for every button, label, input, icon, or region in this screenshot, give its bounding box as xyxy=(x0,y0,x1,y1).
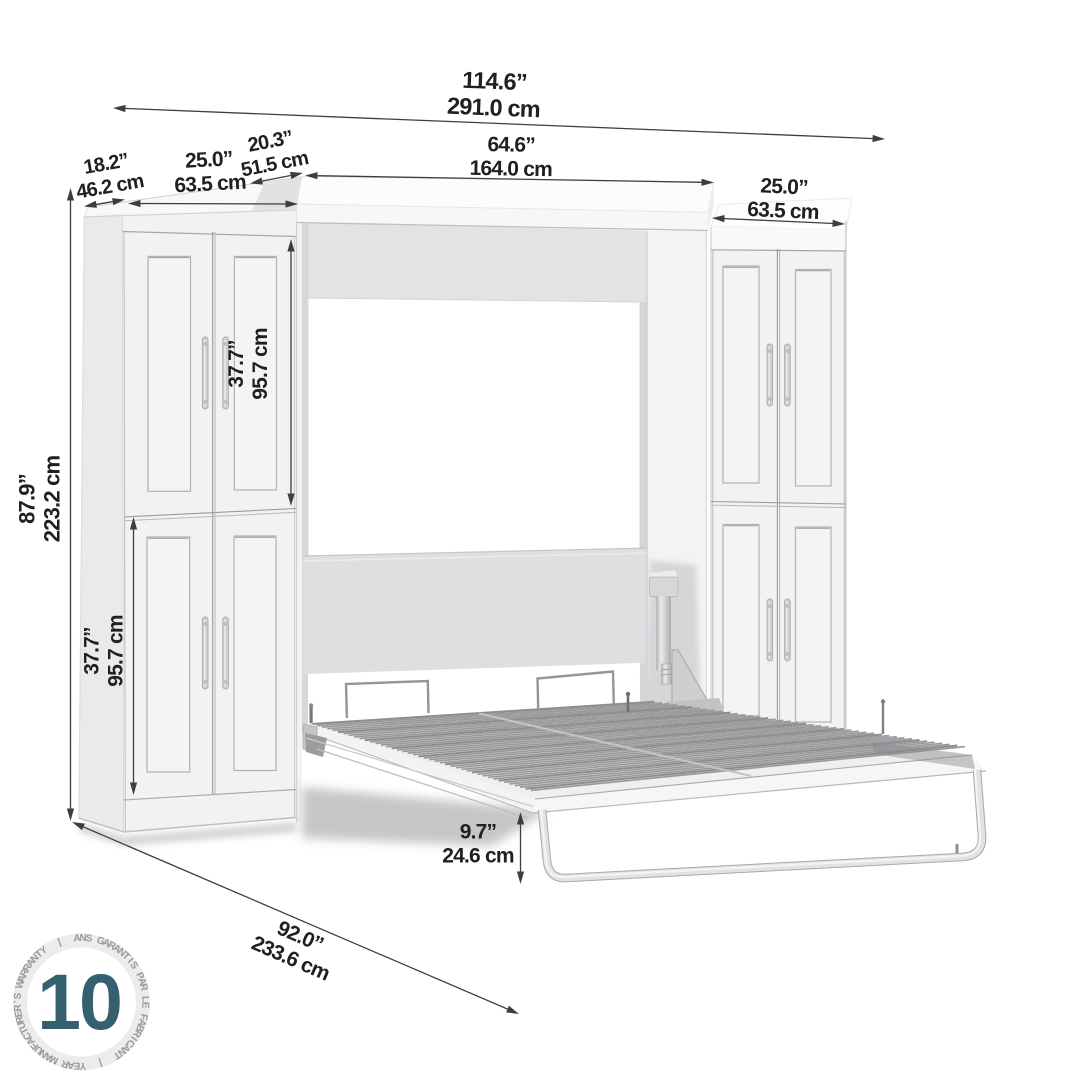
svg-text:25.0”: 25.0” xyxy=(185,147,234,172)
svg-text:63.5 cm: 63.5 cm xyxy=(747,198,820,224)
svg-text:37.7”: 37.7” xyxy=(225,340,248,387)
svg-text:223.2 cm: 223.2 cm xyxy=(40,455,65,542)
svg-text:95.7 cm: 95.7 cm xyxy=(105,615,128,687)
svg-text:10: 10 xyxy=(37,957,121,1046)
svg-text:25.0”: 25.0” xyxy=(760,174,808,199)
svg-text:291.0 cm: 291.0 cm xyxy=(447,93,541,123)
svg-text:37.7”: 37.7” xyxy=(81,627,104,674)
svg-text:87.9”: 87.9” xyxy=(15,474,40,524)
svg-text:63.5 cm: 63.5 cm xyxy=(174,171,247,198)
svg-text:S: S xyxy=(13,992,25,1000)
svg-text:64.6”: 64.6” xyxy=(487,133,535,157)
svg-text:164.0 cm: 164.0 cm xyxy=(469,157,552,181)
svg-text:95.7 cm: 95.7 cm xyxy=(249,328,272,400)
svg-text:’: ’ xyxy=(13,1000,24,1003)
svg-text:24.6 cm: 24.6 cm xyxy=(442,845,514,868)
svg-text:114.6”: 114.6” xyxy=(462,67,527,96)
svg-text:9.7”: 9.7” xyxy=(460,821,497,844)
svg-text:E: E xyxy=(139,1001,150,1009)
